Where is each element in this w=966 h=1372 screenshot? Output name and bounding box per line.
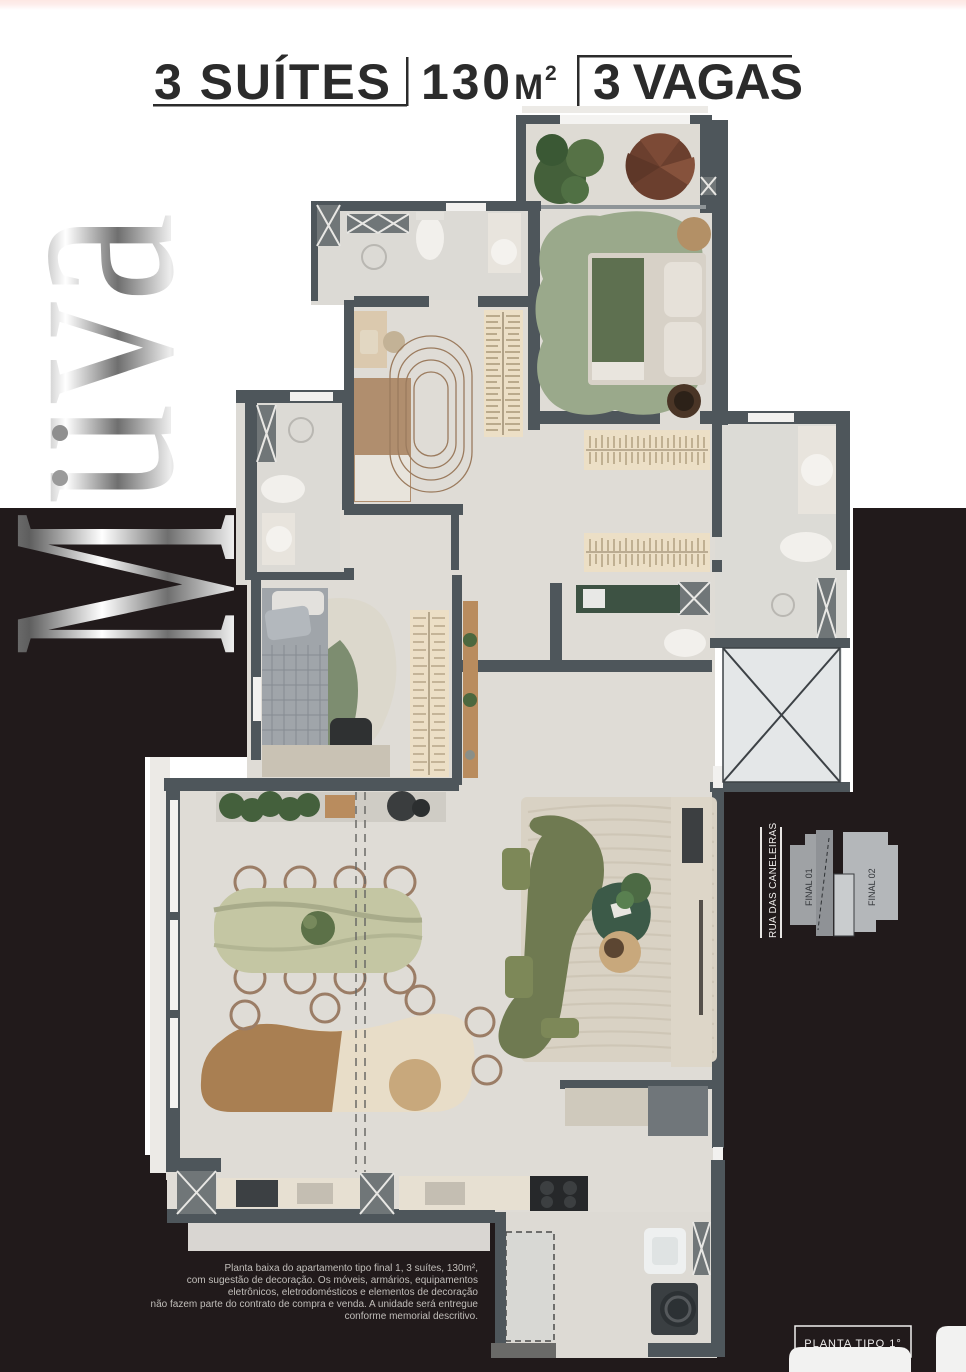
svg-text:FINAL 02: FINAL 02 xyxy=(867,868,877,906)
svg-text:uva: uva xyxy=(0,213,228,504)
svg-text:2: 2 xyxy=(545,62,557,85)
svg-text:RUA DAS CANELEIRAS: RUA DAS CANELEIRAS xyxy=(768,823,779,938)
svg-text:conforme memorial descritivo.: conforme memorial descritivo. xyxy=(345,1311,478,1322)
svg-text:M: M xyxy=(514,68,543,107)
svg-text:não fazem parte do contrato de: não fazem parte do contrato de compra e … xyxy=(151,1299,479,1310)
svg-text:130: 130 xyxy=(421,54,510,110)
svg-text:3 VAGAS: 3 VAGAS xyxy=(593,54,803,110)
svg-text:com sugestão de decoração. Os: com sugestão de decoração. Os móveis, ar… xyxy=(187,1275,478,1286)
svg-text:3 SUÍTES: 3 SUÍTES xyxy=(154,54,390,110)
svg-text:FINAL 01: FINAL 01 xyxy=(804,868,814,906)
svg-text:eletrônicos, eletrodomésticos: eletrônicos, eletrodomésticos e elemento… xyxy=(228,1287,479,1298)
svg-text:Planta baixa do apartamento ti: Planta baixa do apartamento tipo final 1… xyxy=(225,1263,479,1274)
